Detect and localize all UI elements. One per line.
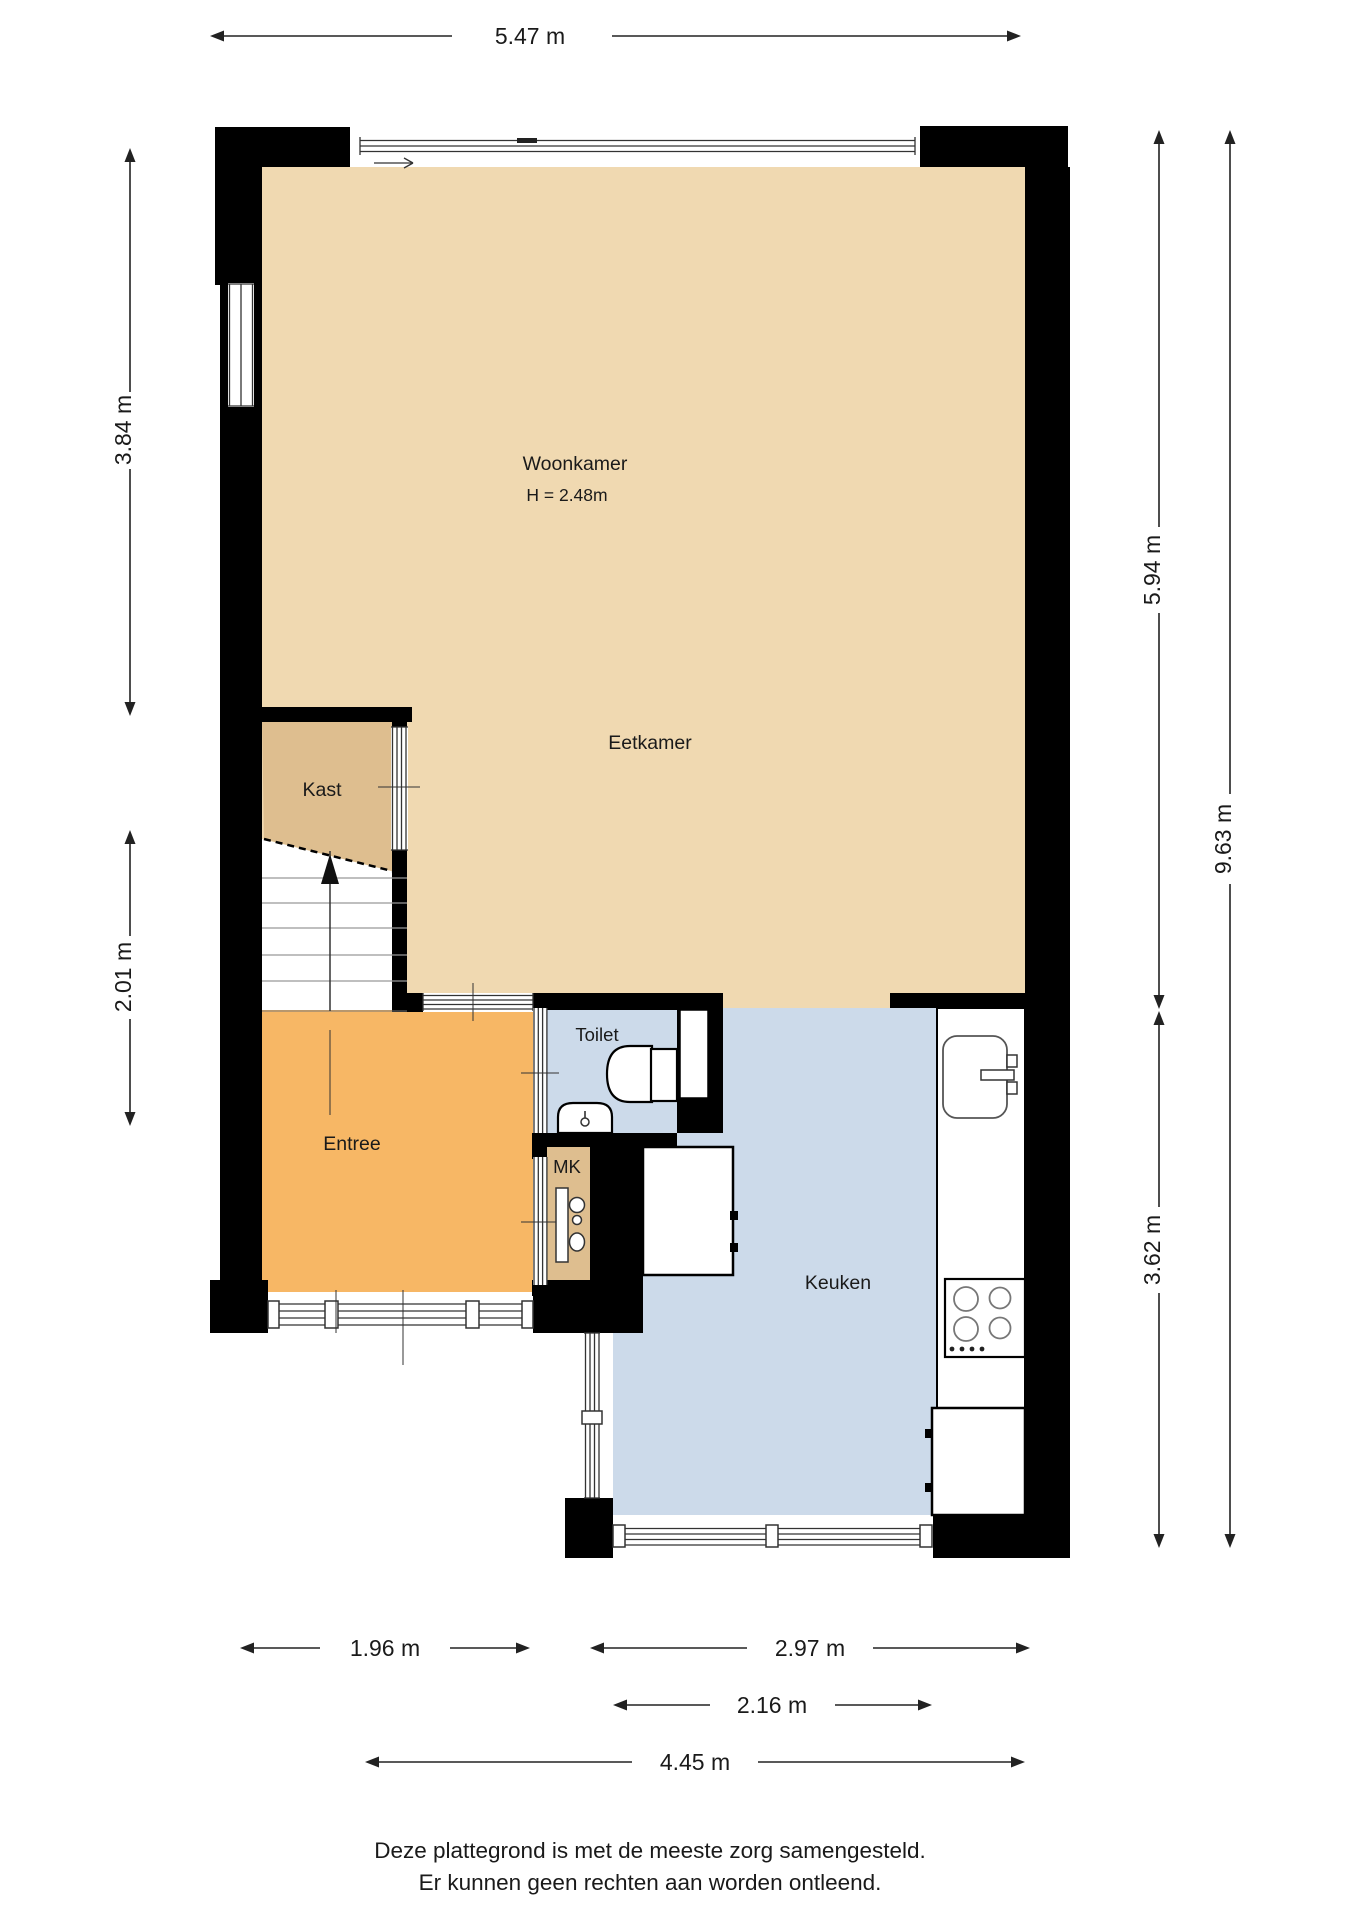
footer-line-2: Er kunnen geen rechten aan worden ontlee…	[419, 1870, 882, 1895]
wall-toilet-top	[532, 993, 677, 1010]
wall-bottom-left-block	[210, 1280, 268, 1333]
dim-bottom-total: 4.45 m	[365, 1749, 1025, 1775]
woonkamer-height-label: H = 2.48m	[526, 485, 607, 505]
sliding-panel-mark	[517, 138, 537, 143]
slide-direction-arrow-icon	[374, 158, 413, 168]
dim-left-upper-label: 3.84 m	[110, 395, 136, 465]
dim-bottom-total-label: 4.45 m	[660, 1749, 730, 1775]
wall-bottom-right-block	[933, 1515, 1070, 1558]
wall-eetkamer-keuken	[890, 993, 1030, 1008]
dim-left-upper: 3.84 m	[110, 148, 136, 716]
dim-left-lower-label: 2.01 m	[110, 942, 136, 1012]
keuken-left-window	[582, 1333, 602, 1498]
toilet-label: Toilet	[575, 1024, 618, 1045]
entree-label: Entree	[323, 1133, 380, 1155]
wall-keuken-bottom-left-block	[565, 1498, 613, 1558]
keuken-cabinet-left	[643, 1147, 738, 1275]
woonkamer-label: Woonkamer	[523, 453, 628, 475]
top-sliding-window	[360, 137, 915, 168]
dim-top-width-label: 5.47 m	[495, 23, 565, 49]
eetkamer-label: Eetkamer	[608, 732, 692, 754]
footer-line-1: Deze plattegrond is met de meeste zorg s…	[374, 1838, 926, 1863]
dim-bottom-keuken-label: 2.97 m	[775, 1635, 845, 1661]
dim-right-upper-label: 5.94 m	[1139, 535, 1165, 605]
wall-top-left-vertical	[215, 127, 262, 285]
keuken-label: Keuken	[805, 1272, 871, 1294]
entree-window	[268, 1290, 533, 1365]
dim-bottom-keuken: 2.97 m	[590, 1635, 1030, 1661]
dim-bottom-entree-label: 1.96 m	[350, 1635, 420, 1661]
dim-bottom-keuken-window: 2.16 m	[613, 1692, 932, 1718]
entree-floor	[262, 1010, 533, 1292]
hinge-icon	[925, 1429, 933, 1438]
wall-mk-bottom-corner	[532, 1280, 613, 1333]
wall-stairs-bottom-stub	[392, 993, 423, 1012]
sink-icon	[943, 1036, 1017, 1118]
stove-icon	[945, 1279, 1025, 1357]
dim-bottom-keuken-window-label: 2.16 m	[737, 1692, 807, 1718]
wall-top-right-horizontal	[920, 126, 1068, 167]
dim-right-lower-label: 3.62 m	[1139, 1215, 1165, 1285]
dim-bottom-entree: 1.96 m	[240, 1635, 530, 1661]
dim-top-width: 5.47 m	[210, 23, 1021, 49]
left-wall-window	[228, 283, 254, 407]
wc-icon	[607, 1046, 677, 1102]
footer-disclaimer: Deze plattegrond is met de meeste zorg s…	[374, 1838, 926, 1895]
wall-left	[220, 283, 262, 1280]
keuken-cabinet-bottom	[925, 1408, 1025, 1515]
hinge-icon	[925, 1483, 933, 1492]
dim-right-upper: 5.94 m	[1139, 130, 1165, 1009]
wall-right	[1025, 167, 1070, 1515]
kast-label: Kast	[302, 779, 342, 801]
hinge-icon	[730, 1243, 738, 1252]
dim-right-total: 9.63 m	[1210, 130, 1236, 1548]
hinge-icon	[730, 1211, 738, 1220]
hand-basin-icon	[558, 1103, 612, 1133]
keuken-bottom-window	[613, 1525, 932, 1547]
dim-right-total-label: 9.63 m	[1210, 804, 1236, 874]
eetkamer-keuken-opening-floor	[723, 995, 890, 1009]
floorplan-drawing: 5.47 m 3.84 m 2.01 m 5.94 m	[0, 0, 1358, 1920]
dim-left-lower: 2.01 m	[110, 830, 136, 1126]
floorplan-page: 5.47 m 3.84 m 2.01 m 5.94 m	[0, 0, 1358, 1920]
dim-right-lower: 3.62 m	[1139, 1011, 1165, 1548]
toilet-keuken-door-leaf	[680, 1010, 708, 1098]
mk-label: MK	[553, 1156, 581, 1177]
wall-kast-top	[262, 707, 412, 722]
